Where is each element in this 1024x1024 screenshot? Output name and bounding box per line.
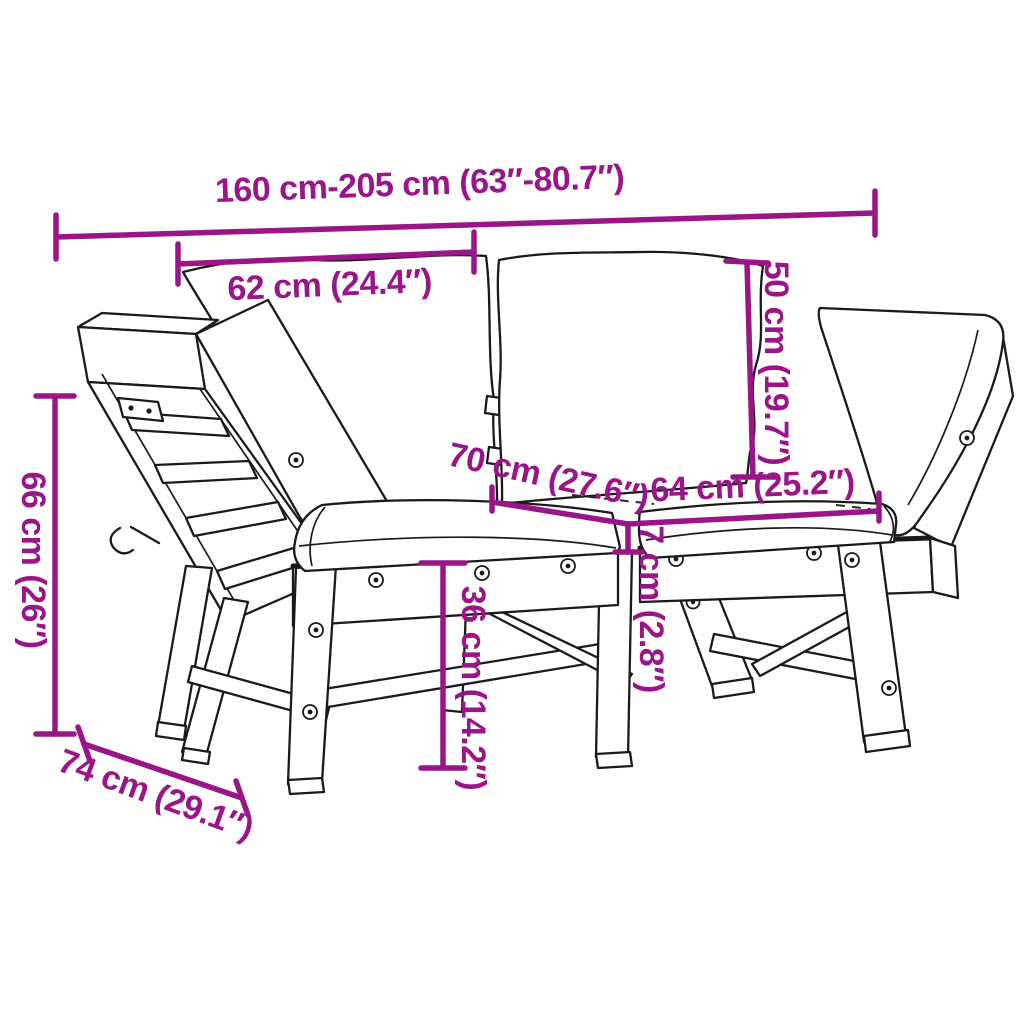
screw-dot: [480, 571, 485, 576]
screw-dot: [314, 628, 319, 633]
foot-pad: [596, 752, 632, 768]
seat-height-label: 36 cm (14.2″): [454, 586, 492, 790]
frame-slat: [155, 461, 257, 483]
front-left-leg: [288, 565, 336, 784]
foot-pad: [182, 748, 210, 764]
left-backrest-cap-front: [78, 327, 205, 389]
bracket-screw: [128, 405, 133, 410]
dimension-diagram: 160 cm-205 cm (63″-80.7″) 62 cm (24.4″) …: [0, 0, 1024, 1024]
screw-dot: [308, 710, 313, 715]
screw-dot: [566, 564, 571, 569]
hinge-clasp: [111, 527, 159, 553]
screw-dot: [965, 436, 970, 441]
side-height-label: 66 cm (26″): [14, 471, 52, 648]
screw-dot: [887, 686, 892, 691]
screw-dot: [812, 551, 817, 556]
screw-dot: [850, 558, 855, 563]
bench-diagram-canvas: 160 cm-205 cm (63″-80.7″) 62 cm (24.4″) …: [0, 0, 1024, 1024]
cushion-thickness-label: 7 cm (2.8″): [632, 525, 670, 693]
screw-dot: [294, 458, 299, 463]
foot-pad: [156, 722, 186, 740]
overall-width-label: 160 cm-205 cm (63″-80.7″): [214, 158, 625, 210]
right-apron-end: [930, 538, 958, 598]
screw-dot: [374, 578, 379, 583]
bracket-screw: [146, 408, 151, 413]
overall-width-line: [56, 213, 875, 237]
foot-pad: [288, 778, 324, 794]
back-cushion-height-label: 50 cm (19.7″): [757, 261, 795, 465]
hinge-bracket: [118, 398, 163, 421]
